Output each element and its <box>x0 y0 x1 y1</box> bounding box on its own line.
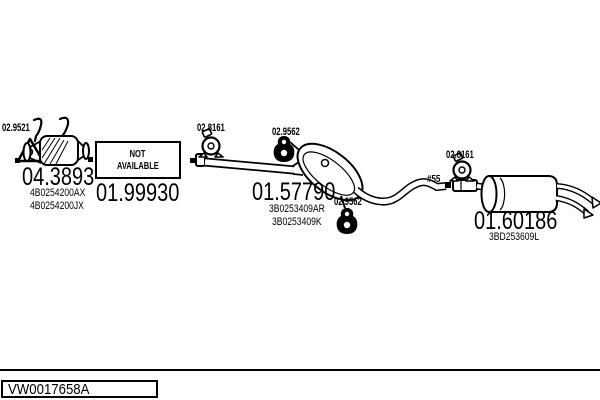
availability-box: NOT AVAILABLE <box>95 141 181 179</box>
availability-line1: NOT <box>130 149 146 160</box>
hanger-mid-label: 02.9562 <box>272 127 300 138</box>
rubber-hanger-icon-mid <box>337 208 358 234</box>
hanger-front-label: 02.9521 <box>2 123 30 134</box>
connecting-pipe-drawing <box>356 180 489 202</box>
drawing-code: VW0017658A <box>8 382 89 397</box>
hanger-rear-mid-label: 02.9562 <box>334 197 362 208</box>
oe-number-middle-muffler-2: 3B0253409K <box>272 217 322 228</box>
part-number-middle-muffler[interactable]: 01.57790 <box>252 180 335 205</box>
oe-number-rear-muffler-1: 3BD253609L <box>489 232 539 243</box>
oe-number-middle-muffler-1: 3B0253409AR <box>269 204 325 215</box>
exhaust-parts-diagram: 02.9521 04.3893 4B0254200AX 4B0254200JX … <box>0 0 600 400</box>
availability-line2: AVAILABLE <box>117 161 159 172</box>
oe-number-catalyst-2: 4B0254200JX <box>30 201 84 212</box>
footer-divider <box>0 369 600 371</box>
oe-number-catalyst-1: 4B0254200AX <box>30 188 85 199</box>
clamp-front-label: 02.8161 <box>197 123 225 134</box>
clamp-rear-label: 02.8161 <box>446 150 474 161</box>
rubber-hanger-icon-front <box>274 136 295 162</box>
part-number-front-pipe[interactable]: 01.99930 <box>96 181 179 206</box>
drawing-code-plate: VW0017658A <box>1 380 158 398</box>
pipe-diameter-note: #55 <box>427 175 440 185</box>
